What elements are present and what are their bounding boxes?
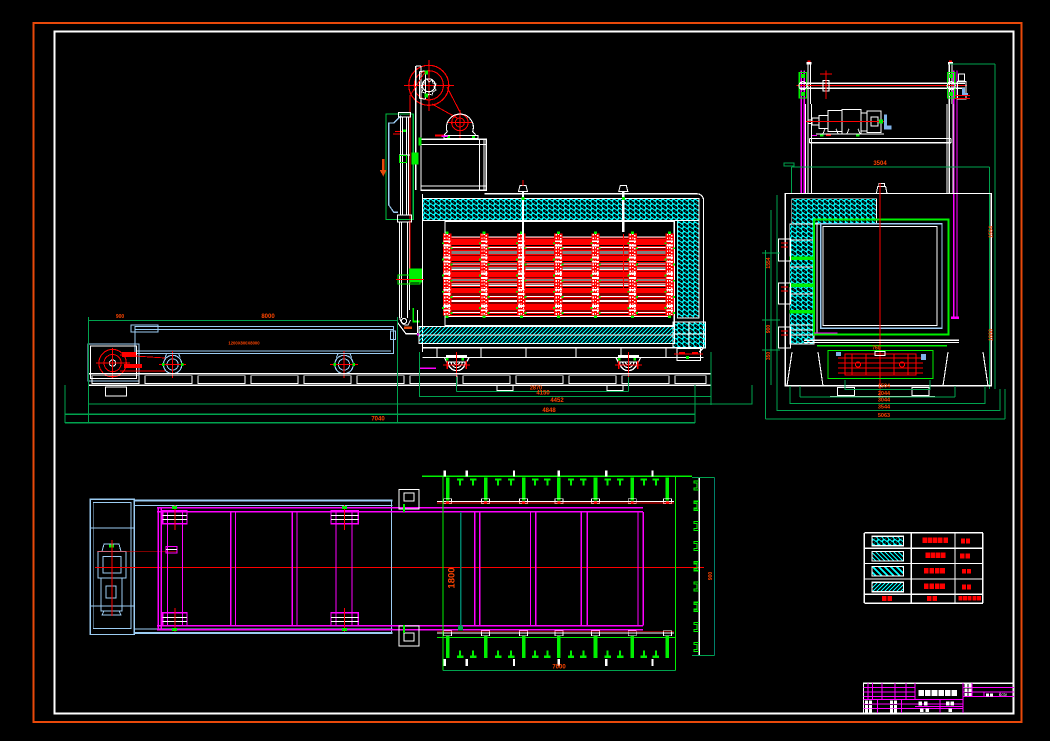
- svg-text:2044: 2044: [878, 391, 891, 397]
- svg-text:7040: 7040: [371, 417, 385, 423]
- svg-text:7000: 7000: [552, 665, 566, 671]
- svg-text:760: 760: [872, 346, 881, 352]
- svg-text:1800: 1800: [447, 567, 458, 588]
- svg-text:900: 900: [708, 572, 714, 581]
- svg-text:cctv: cctv: [999, 692, 1008, 697]
- svg-text:3504: 3504: [873, 161, 887, 167]
- svg-text:1800: 1800: [989, 329, 995, 341]
- svg-text:4452: 4452: [550, 398, 564, 404]
- svg-text:900: 900: [116, 314, 125, 320]
- svg-text:1200X800X8000: 1200X800X8000: [228, 341, 260, 346]
- svg-text:1504: 1504: [878, 384, 891, 390]
- svg-text:900: 900: [766, 325, 772, 334]
- svg-text:1554: 1554: [989, 225, 995, 238]
- svg-text:1554: 1554: [766, 257, 772, 268]
- svg-text:350: 350: [766, 352, 772, 361]
- svg-text:4150: 4150: [536, 391, 550, 397]
- svg-text:8000: 8000: [261, 314, 275, 320]
- svg-text:4848: 4848: [542, 408, 556, 414]
- svg-text:3044: 3044: [878, 398, 891, 404]
- svg-text:3544: 3544: [878, 405, 891, 411]
- svg-text:5063: 5063: [878, 413, 890, 419]
